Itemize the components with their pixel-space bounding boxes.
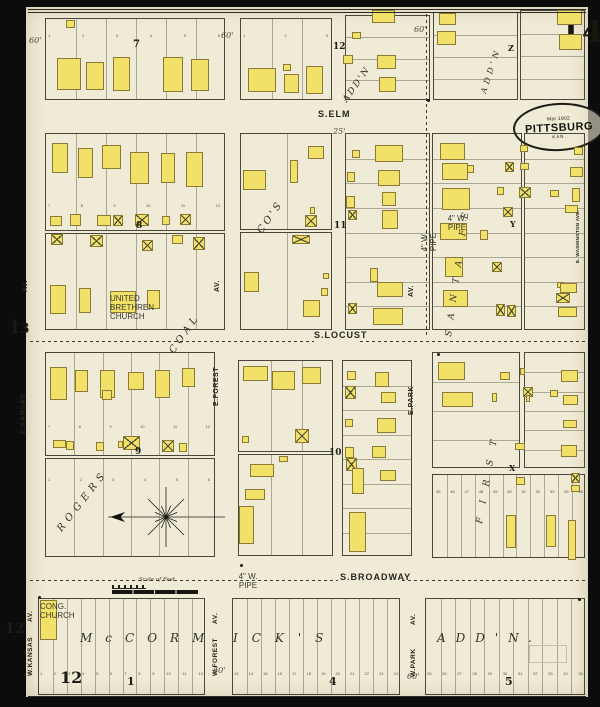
street-label: E. WASHINGTON AVE. — [576, 210, 581, 263]
lot-number: 6 — [208, 477, 210, 482]
lot-line — [373, 599, 374, 694]
lot-number: 12 — [198, 671, 202, 676]
lot-line — [95, 599, 96, 694]
street-dashed-line — [402, 580, 586, 581]
dwelling-building — [372, 446, 386, 458]
survey-dot — [38, 596, 41, 599]
lot-line — [455, 599, 456, 694]
stable-building — [519, 187, 531, 198]
street-dashed-line — [426, 14, 427, 338]
dwelling-building — [346, 196, 355, 208]
dwelling-building — [308, 146, 324, 159]
lot-line — [343, 410, 411, 411]
dwelling-building — [373, 308, 403, 325]
dimension-label: 60' — [407, 673, 419, 681]
dwelling-building — [574, 147, 583, 155]
stable-building — [507, 305, 516, 317]
block-number: 5 — [505, 676, 513, 687]
faint-stamp — [529, 645, 567, 663]
frame-rule — [28, 9, 586, 10]
lot-number: 7 — [124, 671, 126, 676]
lot-line — [188, 459, 189, 556]
lot-number: 13 — [234, 671, 238, 676]
stable-building — [348, 210, 357, 220]
block-number: 8 — [136, 222, 142, 231]
lot-line — [343, 508, 411, 509]
lot-line — [447, 475, 448, 557]
lot-line — [571, 599, 572, 694]
dwelling-building — [520, 163, 529, 170]
dwelling-building — [379, 77, 396, 92]
lot-line — [109, 599, 110, 694]
street-label: E.FOREST — [213, 367, 220, 406]
lot-number: 17 — [292, 671, 296, 676]
dwelling-building — [303, 300, 320, 317]
lot-number: 26 — [442, 671, 446, 676]
lot-number: 6 — [110, 671, 112, 676]
block-number: 1 — [127, 676, 135, 687]
dwelling-building — [377, 282, 403, 297]
lot-number: 9 — [152, 671, 154, 676]
lot-line — [346, 233, 429, 234]
lot-line — [484, 599, 485, 694]
dwelling-building — [467, 165, 474, 173]
lot-number: 7 — [48, 203, 50, 208]
lot-number-row: 4546474849505152535455 — [436, 489, 583, 494]
lot-line — [525, 411, 584, 412]
lot-line — [192, 599, 193, 694]
lot-line — [136, 19, 137, 99]
paper: 14 Mar.1902 PITTSBURG KAN. Scale of Feet — [26, 7, 588, 697]
dwelling-building — [377, 418, 396, 433]
dwelling-building — [382, 210, 398, 229]
survey-dot — [13, 319, 16, 322]
lot-line — [513, 599, 514, 694]
dwelling-building — [561, 445, 577, 457]
block-number: 10 — [329, 449, 342, 458]
lot-line — [530, 475, 531, 557]
dwelling-building — [52, 143, 68, 173]
stable-building — [556, 293, 570, 303]
lot-number: 3 — [326, 33, 328, 38]
lot-number: 49 — [493, 489, 497, 494]
dwelling-building — [352, 468, 364, 494]
dwelling-building — [480, 230, 488, 240]
addition-label: McCORM — [80, 632, 217, 644]
block-number: 7 — [133, 40, 140, 50]
frame-rule — [28, 12, 586, 13]
street-label: AV. — [408, 285, 415, 297]
dwelling-building — [53, 440, 66, 448]
dwelling-building — [239, 506, 254, 544]
lot-line — [261, 599, 262, 694]
lot-number: 9 — [109, 424, 111, 429]
dwelling-building — [352, 150, 360, 158]
survey-dot — [240, 564, 243, 567]
street-label: S.ELM — [318, 110, 351, 119]
dwelling-building — [130, 152, 149, 184]
block-number: 11 — [334, 222, 347, 231]
city-block — [232, 598, 400, 695]
lot-number: 48 — [479, 489, 483, 494]
dwelling-building — [97, 215, 111, 226]
dwelling-building — [86, 62, 104, 90]
lot-number: 22 — [365, 671, 369, 676]
dwelling-building — [520, 368, 525, 375]
dwelling-building — [561, 370, 578, 382]
stable-building — [162, 440, 174, 452]
dwelling-building — [382, 192, 396, 206]
dwelling-building — [66, 20, 75, 28]
lot-number: 10 — [140, 424, 144, 429]
street-dashed-line — [360, 341, 586, 342]
dwelling-building — [245, 489, 265, 500]
dwelling-building — [102, 390, 112, 400]
lot-line — [516, 475, 517, 557]
dwelling-building — [243, 366, 268, 381]
scale-bar-segments — [112, 590, 198, 594]
lot-number: 53 — [550, 489, 554, 494]
lot-line — [303, 599, 304, 694]
lot-number: 45 — [436, 489, 440, 494]
dwelling-building — [550, 190, 559, 197]
lot-number: 21 — [350, 671, 354, 676]
lot-number: 4 — [82, 671, 84, 676]
dwelling-building — [70, 214, 81, 226]
survey-dot — [437, 353, 440, 356]
dwelling-building — [438, 362, 465, 380]
lot-number-row: 2526272829303132333435 — [427, 671, 583, 676]
lot-number: 52 — [536, 489, 540, 494]
map-sheet: 14 Mar.1902 PITTSBURG KAN. Scale of Feet — [0, 0, 600, 707]
dimension-label: 25' — [333, 128, 345, 136]
lot-number: 35 — [578, 671, 582, 676]
lot-line — [106, 234, 107, 329]
lot-line — [521, 56, 584, 57]
dwelling-building — [437, 31, 456, 45]
dimension-label: 60' — [29, 37, 41, 45]
lot-line — [164, 599, 165, 694]
lot-line — [433, 382, 519, 383]
dwelling-building — [440, 143, 465, 160]
dwelling-building — [563, 395, 578, 405]
dwelling-building — [439, 13, 456, 25]
lot-line — [433, 440, 519, 441]
dwelling-building — [343, 55, 353, 64]
lot-line — [302, 19, 303, 99]
lot-line — [346, 257, 429, 258]
lot-number: 28 — [472, 671, 476, 676]
lot-number-row: 789101112 — [48, 424, 210, 429]
scale-ruler — [112, 585, 146, 589]
lot-number: 11 — [173, 424, 177, 429]
stable-building — [305, 215, 317, 227]
dwelling-building — [306, 66, 323, 94]
block-number: 13 — [10, 322, 29, 336]
dwelling-building — [321, 288, 328, 296]
dwelling-building — [78, 148, 93, 178]
street-label: AV. — [214, 280, 221, 292]
dimension-label: 60' — [221, 32, 233, 40]
street-label: S.BROADWAY — [340, 573, 411, 582]
lot-line — [166, 234, 167, 329]
lot-line — [359, 599, 360, 694]
lot-number: 3 — [116, 33, 118, 38]
lot-number: 7 — [48, 424, 50, 429]
lot-line — [433, 183, 521, 184]
corner-marker: Y — [510, 220, 516, 228]
dwelling-building — [66, 441, 74, 450]
lot-line — [503, 475, 504, 557]
dwelling-building — [550, 390, 558, 397]
street-label: S.LOCUST — [314, 331, 368, 340]
stable-building — [90, 235, 103, 247]
dwelling-building — [568, 520, 576, 560]
stable-building — [193, 237, 205, 250]
dwelling-building — [243, 170, 266, 190]
lot-line — [521, 79, 584, 80]
lot-number: 2 — [82, 33, 84, 38]
stable-building — [505, 162, 514, 172]
dwelling-building — [442, 392, 473, 407]
survey-dot — [427, 99, 430, 102]
street-label: E.KANSAS — [20, 394, 27, 434]
lot-number-row: 123456 — [48, 33, 220, 38]
lot-number: 33 — [548, 671, 552, 676]
dwelling-building — [242, 436, 249, 443]
lot-line — [343, 435, 411, 436]
stable-building — [113, 215, 123, 226]
lot-number: 12 — [216, 203, 220, 208]
dwelling-building — [572, 188, 580, 202]
stable-building — [348, 303, 357, 314]
street-dashed-line — [30, 580, 338, 581]
stable-building — [292, 235, 310, 244]
stable-building — [51, 234, 63, 245]
building-label: 4" W. PIPE — [447, 214, 467, 232]
lot-number: 11 — [183, 671, 187, 676]
street-label: AV. — [22, 280, 29, 292]
lot-number: 8 — [79, 424, 81, 429]
lot-number: 8 — [138, 671, 140, 676]
lot-line — [159, 459, 160, 556]
dwelling-building — [290, 160, 298, 183]
dwelling-building — [380, 470, 396, 481]
dwelling-building — [506, 515, 516, 548]
dwelling-building — [520, 145, 528, 152]
lot-number: 4 — [150, 33, 152, 38]
lot-line — [441, 599, 442, 694]
dwelling-building — [248, 68, 276, 92]
lot-number: 50 — [507, 489, 511, 494]
lot-line — [74, 353, 75, 455]
lot-number: 5 — [96, 671, 98, 676]
lot-number: 6 — [218, 33, 220, 38]
street-label: AV. — [213, 613, 220, 624]
dwelling-building — [283, 64, 291, 71]
dimension-label: 60' — [213, 667, 225, 675]
dwelling-building — [375, 145, 403, 162]
lot-number: 5 — [176, 477, 178, 482]
dwelling-building — [57, 58, 81, 90]
lot-number: 1 — [40, 671, 42, 676]
dwelling-building — [284, 74, 299, 93]
dwelling-building — [516, 477, 525, 485]
lot-number-row: 123 — [243, 33, 328, 38]
dwelling-building — [515, 443, 525, 450]
building-label: UNITED BRETHREN CHURCH — [110, 294, 136, 322]
dwelling-building — [161, 153, 175, 183]
dwelling-building — [497, 187, 504, 195]
dwelling-building — [347, 172, 355, 182]
lot-line — [434, 57, 517, 58]
lot-line — [558, 475, 559, 557]
dwelling-building — [559, 34, 582, 50]
dwelling-building — [102, 145, 121, 169]
stable-building — [492, 262, 502, 272]
dwelling-building — [162, 216, 170, 225]
lot-number: 14 — [249, 671, 253, 676]
lot-number: 54 — [564, 489, 568, 494]
dwelling-building — [347, 371, 356, 380]
dwelling-building — [163, 57, 183, 92]
dwelling-building — [186, 152, 203, 187]
lot-number: 1 — [48, 477, 50, 482]
addition-label: ADD'N. — [437, 632, 542, 644]
lot-line — [499, 599, 500, 694]
dwelling-building — [352, 32, 361, 39]
lot-line — [247, 599, 248, 694]
lot-line — [287, 134, 288, 229]
dwelling-building — [50, 367, 67, 400]
dwelling-building — [155, 370, 170, 398]
lot-line — [461, 475, 462, 557]
lot-number-row: 789101112 — [48, 203, 220, 208]
dwelling-building — [377, 55, 396, 69]
lot-number: 1 — [48, 33, 50, 38]
dwelling-building — [179, 443, 187, 452]
lot-line — [302, 455, 303, 555]
lot-number: 30 — [503, 671, 507, 676]
lot-line — [387, 599, 388, 694]
lot-number: 2 — [54, 671, 56, 676]
street-label: W.KANSAS — [28, 637, 35, 676]
lot-number: 11 — [181, 203, 185, 208]
lot-number: 23 — [379, 671, 383, 676]
lot-number: 3 — [112, 477, 114, 482]
building-label: 4" W. PIPE — [420, 232, 438, 252]
city-block — [433, 12, 518, 100]
dwelling-building — [563, 420, 577, 428]
dwelling-building — [75, 370, 88, 392]
block-number: 4 — [329, 676, 337, 687]
corner-marker: Z — [508, 44, 514, 52]
dwelling-building — [50, 285, 66, 314]
dwelling-building — [272, 371, 295, 390]
lot-number-row: 123456 — [48, 477, 210, 482]
lot-number-row: 131415161718192021222324 — [234, 671, 398, 676]
dwelling-building — [370, 268, 378, 282]
lot-line — [131, 459, 132, 556]
street-label: E.PARK — [408, 386, 415, 415]
dwelling-building — [113, 57, 130, 91]
dwelling-building — [345, 447, 354, 458]
lot-number: 55 — [579, 489, 583, 494]
lot-number: 47 — [465, 489, 469, 494]
lot-number: 10 — [146, 203, 150, 208]
dwelling-building — [302, 367, 321, 384]
lot-line — [287, 233, 288, 329]
dwelling-building — [558, 307, 577, 317]
dwelling-building — [172, 235, 183, 244]
lot-number: 20 — [336, 671, 340, 676]
lot-line — [159, 353, 160, 455]
stable-building — [345, 386, 356, 399]
stable-building — [180, 214, 191, 225]
dwelling-building — [310, 207, 315, 214]
lot-number: 32 — [533, 671, 537, 676]
lot-number: 4 — [144, 477, 146, 482]
stable-building — [571, 473, 580, 483]
dimension-label: 60' — [414, 26, 426, 34]
lot-line — [275, 599, 276, 694]
dwelling-building — [570, 167, 583, 177]
addition-label: ICK'S — [233, 632, 337, 644]
lot-line — [317, 599, 318, 694]
lot-number: 9 — [113, 203, 115, 208]
lot-line — [470, 599, 471, 694]
dwelling-building — [349, 512, 366, 552]
dwelling-building — [128, 372, 144, 390]
block-number: 12 — [333, 43, 346, 52]
building-label: CONG. CHURCH — [40, 602, 57, 620]
lot-line — [346, 208, 429, 209]
dwelling-building — [250, 464, 274, 477]
lot-line — [178, 599, 179, 694]
lot-line — [525, 183, 584, 184]
lot-number: 25 — [427, 671, 431, 676]
dwelling-building — [526, 395, 530, 402]
dwelling-building — [96, 442, 104, 451]
lot-number: 2 — [284, 33, 286, 38]
lot-line — [123, 599, 124, 694]
lot-number: 8 — [81, 203, 83, 208]
stable-building — [295, 429, 309, 443]
dwelling-building — [378, 170, 400, 186]
lot-number: 12 — [206, 424, 210, 429]
street-label: AV. — [411, 614, 418, 625]
building-label: 4" W. PIPE — [238, 572, 258, 590]
lot-number: 31 — [518, 671, 522, 676]
lot-number: 27 — [457, 671, 461, 676]
lot-number: 16 — [278, 671, 282, 676]
dwelling-building — [279, 456, 288, 462]
lot-line — [150, 599, 151, 694]
lot-number: 18 — [307, 671, 311, 676]
dwelling-building — [492, 393, 497, 402]
block-number: 9 — [135, 448, 141, 457]
street-label: AV. — [28, 611, 35, 622]
lot-line — [103, 353, 104, 455]
survey-dot — [578, 598, 581, 601]
lot-number: 34 — [563, 671, 567, 676]
stable-building — [142, 240, 153, 251]
lot-line — [525, 430, 584, 431]
dwelling-building — [182, 368, 195, 387]
lot-line — [289, 599, 290, 694]
lot-number: 29 — [488, 671, 492, 676]
lot-number: 5 — [184, 33, 186, 38]
